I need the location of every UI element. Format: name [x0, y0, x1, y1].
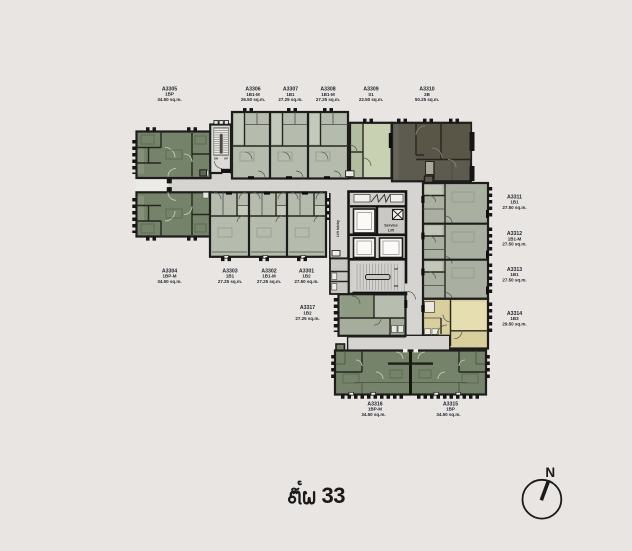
svg-text:27.25 sq.m.: 27.25 sq.m.: [295, 316, 319, 321]
svg-text:1B2: 1B2: [303, 311, 312, 316]
svg-text:27.50 sq.m.: 27.50 sq.m.: [502, 277, 526, 282]
svg-text:1B1: 1B1: [286, 92, 295, 97]
svg-text:S1: S1: [368, 92, 374, 97]
svg-text:27.25 sq.m.: 27.25 sq.m.: [257, 279, 281, 284]
svg-text:1B2: 1B2: [302, 274, 311, 279]
svg-text:27.25 sq.m.: 27.25 sq.m.: [218, 279, 242, 284]
svg-text:34.50 sq.m.: 34.50 sq.m.: [361, 412, 385, 417]
svg-text:N: N: [545, 465, 555, 480]
svg-text:Lift: Lift: [388, 229, 395, 233]
svg-text:DN: DN: [394, 284, 398, 288]
svg-text:34.50 sq.m.: 34.50 sq.m.: [157, 97, 181, 102]
svg-text:UP: UP: [394, 267, 398, 271]
svg-text:1BP: 1BP: [165, 92, 174, 97]
svg-text:22.50 sq.m.: 22.50 sq.m.: [359, 97, 383, 102]
svg-text:1BP: 1BP: [446, 407, 455, 412]
svg-text:UP: UP: [224, 156, 228, 160]
svg-text:DN: DN: [214, 156, 218, 160]
svg-text:1B1: 1B1: [226, 274, 235, 279]
svg-text:27.25 sq.m.: 27.25 sq.m.: [316, 97, 340, 102]
svg-text:1B1-M: 1B1-M: [246, 92, 260, 97]
svg-text:26.50 sq.m.: 26.50 sq.m.: [241, 97, 265, 102]
svg-text:2B: 2B: [424, 92, 431, 97]
svg-text:33: 33: [322, 483, 346, 508]
svg-text:27.25 sq.m.: 27.25 sq.m.: [278, 97, 302, 102]
svg-text:34.50 sq.m.: 34.50 sq.m.: [157, 279, 181, 284]
svg-text:1B1: 1B1: [510, 200, 519, 205]
svg-text:Service: Service: [384, 224, 398, 228]
svg-text:1B1: 1B1: [510, 272, 519, 277]
svg-text:29.50 sq.m.: 29.50 sq.m.: [502, 321, 526, 326]
svg-text:50.25 sq.m.: 50.25 sq.m.: [415, 97, 439, 102]
svg-text:1BP-M: 1BP-M: [368, 407, 382, 412]
svg-text:27.50 sq.m.: 27.50 sq.m.: [294, 279, 318, 284]
svg-text:1BP-M: 1BP-M: [162, 274, 176, 279]
svg-text:27.50 sq.m.: 27.50 sq.m.: [502, 205, 526, 210]
svg-text:1B1-M: 1B1-M: [321, 92, 335, 97]
svg-text:Lift lobby: Lift lobby: [336, 219, 340, 237]
svg-text:34.50 sq.m.: 34.50 sq.m.: [436, 412, 460, 417]
svg-text:1B1-M: 1B1-M: [262, 274, 276, 279]
svg-text:27.50 sq.m.: 27.50 sq.m.: [502, 242, 526, 247]
svg-text:1B1-M: 1B1-M: [508, 236, 522, 241]
svg-text:1B3: 1B3: [510, 316, 519, 321]
